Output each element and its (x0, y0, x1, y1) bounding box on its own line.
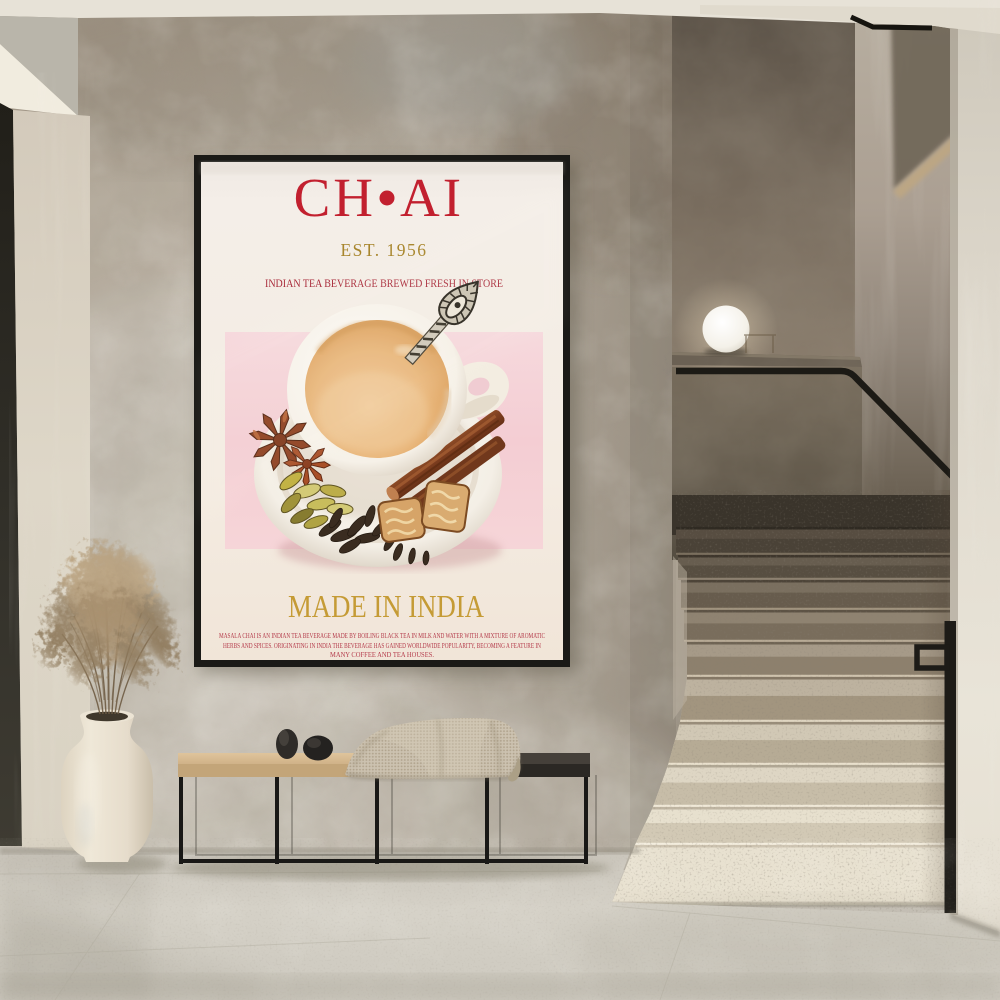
svg-text:CH: CH (294, 167, 376, 228)
svg-text:MANY COFFEE AND TEA HOUSES.: MANY COFFEE AND TEA HOUSES. (330, 650, 434, 659)
svg-text:MADE IN INDIA: MADE IN INDIA (288, 588, 484, 624)
svg-text:HERBS AND SPICES. ORIGINATING: HERBS AND SPICES. ORIGINATING IN INDIA T… (223, 641, 541, 650)
svg-text:MASALA CHAI IS AN INDIAN TEA B: MASALA CHAI IS AN INDIAN TEA BEVERAGE MA… (219, 631, 545, 640)
svg-text:AI: AI (400, 167, 464, 228)
